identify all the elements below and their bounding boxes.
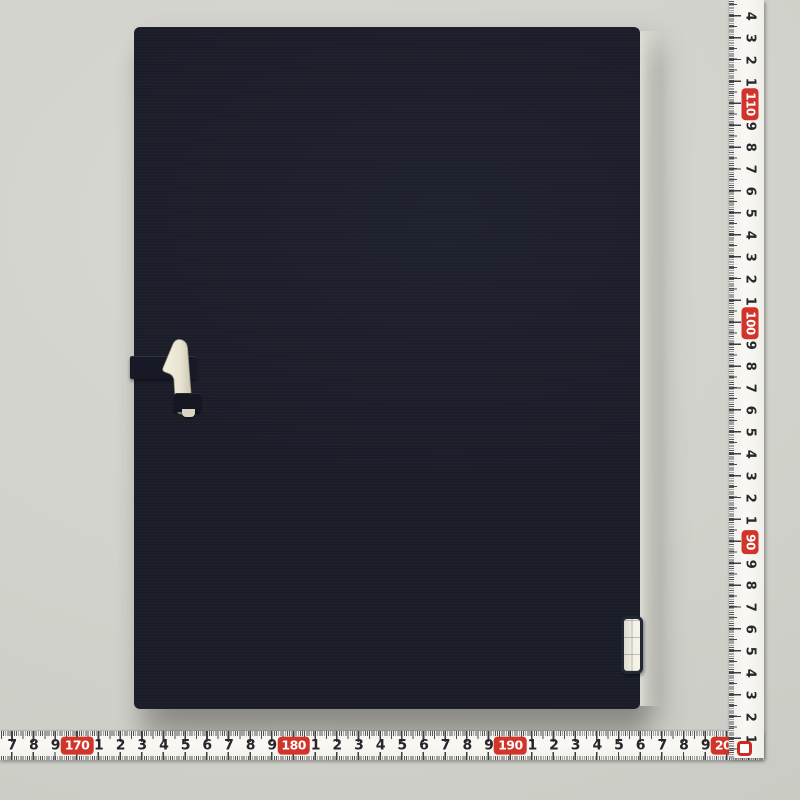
h-ruler-label: 4	[376, 737, 385, 753]
v-ruler-label: 5	[743, 647, 758, 656]
v-ruler-label: 8	[743, 143, 758, 152]
v-ruler-label: 9	[743, 340, 758, 349]
horizontal-tape-measure: 7891701234567891801234567891901234567892…	[0, 731, 764, 760]
h-ruler-label: 170	[61, 736, 94, 754]
navy-folder-board	[134, 27, 640, 709]
h-ruler-label: 9	[701, 737, 710, 753]
h-ruler-label: 2	[116, 737, 125, 753]
h-ruler-label: 8	[462, 737, 471, 753]
v-ruler-label: 7	[743, 384, 758, 393]
v-ruler-label: 5	[743, 209, 758, 218]
h-ruler-label: 3	[354, 737, 363, 753]
h-ruler-label: 9	[51, 737, 60, 753]
v-ruler-label: 8	[743, 581, 758, 590]
v-ruler-label: 4	[743, 450, 758, 459]
v-ruler-label: 7	[743, 603, 758, 612]
v-ruler-label: 1	[743, 77, 758, 86]
v-ruler-label: 6	[743, 406, 758, 415]
h-ruler-label: 2	[549, 737, 558, 753]
h-ruler-label: 6	[636, 737, 645, 753]
v-ruler-label: 3	[743, 691, 758, 700]
white-size-tag	[621, 616, 643, 674]
h-ruler-label: 5	[181, 737, 190, 753]
h-ruler-label: 1	[311, 737, 320, 753]
h-ruler-label: 7	[441, 737, 450, 753]
v-ruler-label: 4	[743, 231, 758, 240]
h-ruler-label: 7	[224, 737, 233, 753]
h-ruler-label: 3	[571, 737, 580, 753]
h-ruler-label: 6	[202, 737, 211, 753]
h-ruler-label: 8	[246, 737, 255, 753]
h-ruler-label: 7	[7, 737, 16, 753]
v-ruler-label: 4	[743, 669, 758, 678]
h-ruler-label: 8	[29, 737, 38, 753]
v-ruler-label: 110	[742, 88, 759, 120]
product-photo: 7891701234567891801234567891901234567892…	[0, 0, 800, 800]
v-ruler-label: 2	[743, 494, 758, 503]
v-ruler-label: 2	[743, 713, 758, 722]
v-ruler-label: 4	[743, 12, 758, 21]
h-ruler-label: 6	[419, 737, 428, 753]
vertical-tape-measure: 432111098765432110098765432190987654321	[729, 0, 764, 758]
v-ruler-label: 1	[743, 515, 758, 524]
h-ruler-label: 9	[484, 737, 493, 753]
h-ruler-label: 190	[494, 736, 527, 754]
h-ruler-label: 7	[657, 737, 666, 753]
h-ruler-label: 9	[267, 737, 276, 753]
v-ruler-label: 3	[743, 34, 758, 43]
v-ruler-label: 7	[743, 165, 758, 174]
v-ruler-label: 90	[742, 530, 759, 554]
v-ruler-label: 8	[743, 362, 758, 371]
h-ruler-label: 5	[614, 737, 623, 753]
h-ruler-label: 1	[527, 737, 536, 753]
h-ruler-label: 180	[277, 736, 310, 754]
v-ruler-label: 2	[743, 275, 758, 284]
v-ruler-label: 2	[743, 56, 758, 65]
h-ruler-label: 2	[332, 737, 341, 753]
v-ruler-label: 1	[743, 296, 758, 305]
tape-zero-end-marker	[737, 741, 752, 756]
v-ruler-label: 6	[743, 187, 758, 196]
h-ruler-label: 1	[94, 737, 103, 753]
v-ruler-label: 3	[743, 472, 758, 481]
v-ruler-label: 6	[743, 625, 758, 634]
h-ruler-label: 8	[679, 737, 688, 753]
h-ruler-label: 5	[397, 737, 406, 753]
v-ruler-label: 100	[742, 307, 759, 339]
v-ruler-label: 5	[743, 428, 758, 437]
v-ruler-label: 3	[743, 253, 758, 262]
tag-grid-lines	[624, 619, 640, 671]
h-ruler-label: 3	[137, 737, 146, 753]
h-ruler-label: 4	[592, 737, 601, 753]
clasp-hook-tip	[182, 409, 195, 417]
h-ruler-label: 4	[159, 737, 168, 753]
v-ruler-label: 9	[743, 121, 758, 130]
v-ruler-label: 9	[743, 559, 758, 568]
